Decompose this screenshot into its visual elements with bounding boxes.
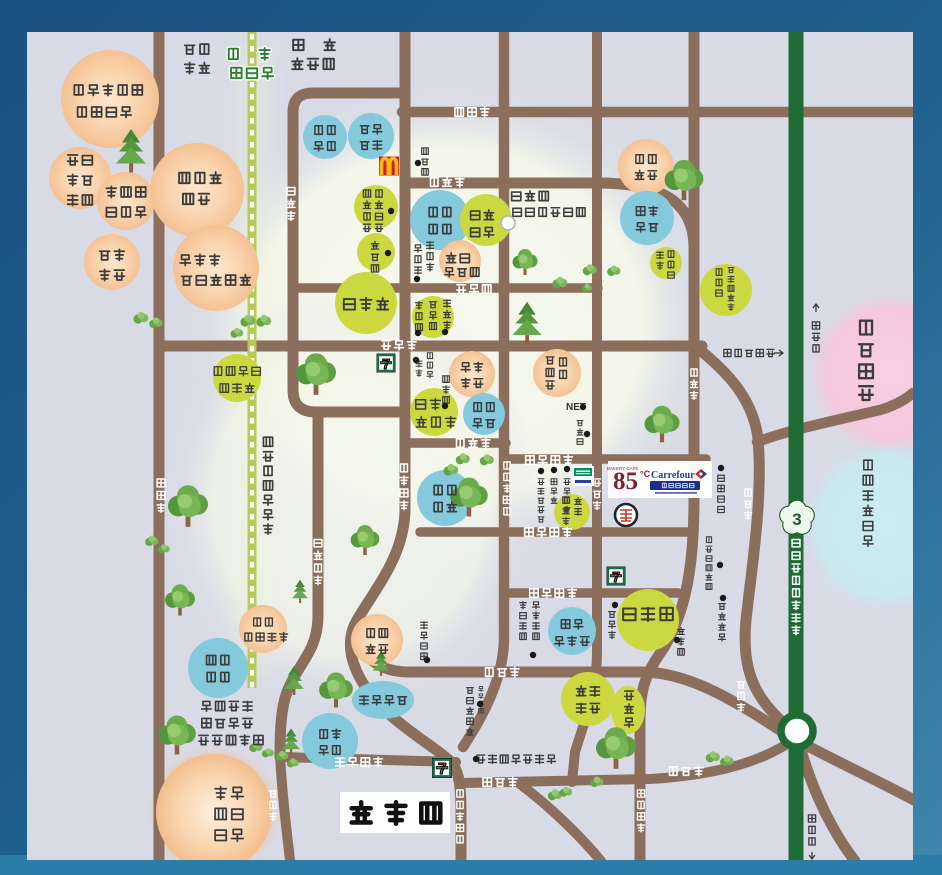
svg-text:BAKERY CAFE: BAKERY CAFE — [607, 466, 638, 471]
svg-text:85: 85 — [613, 468, 638, 495]
svg-text:3: 3 — [792, 510, 801, 529]
svg-text:°C: °C — [640, 469, 651, 479]
svg-text:Carrefour: Carrefour — [651, 470, 695, 481]
